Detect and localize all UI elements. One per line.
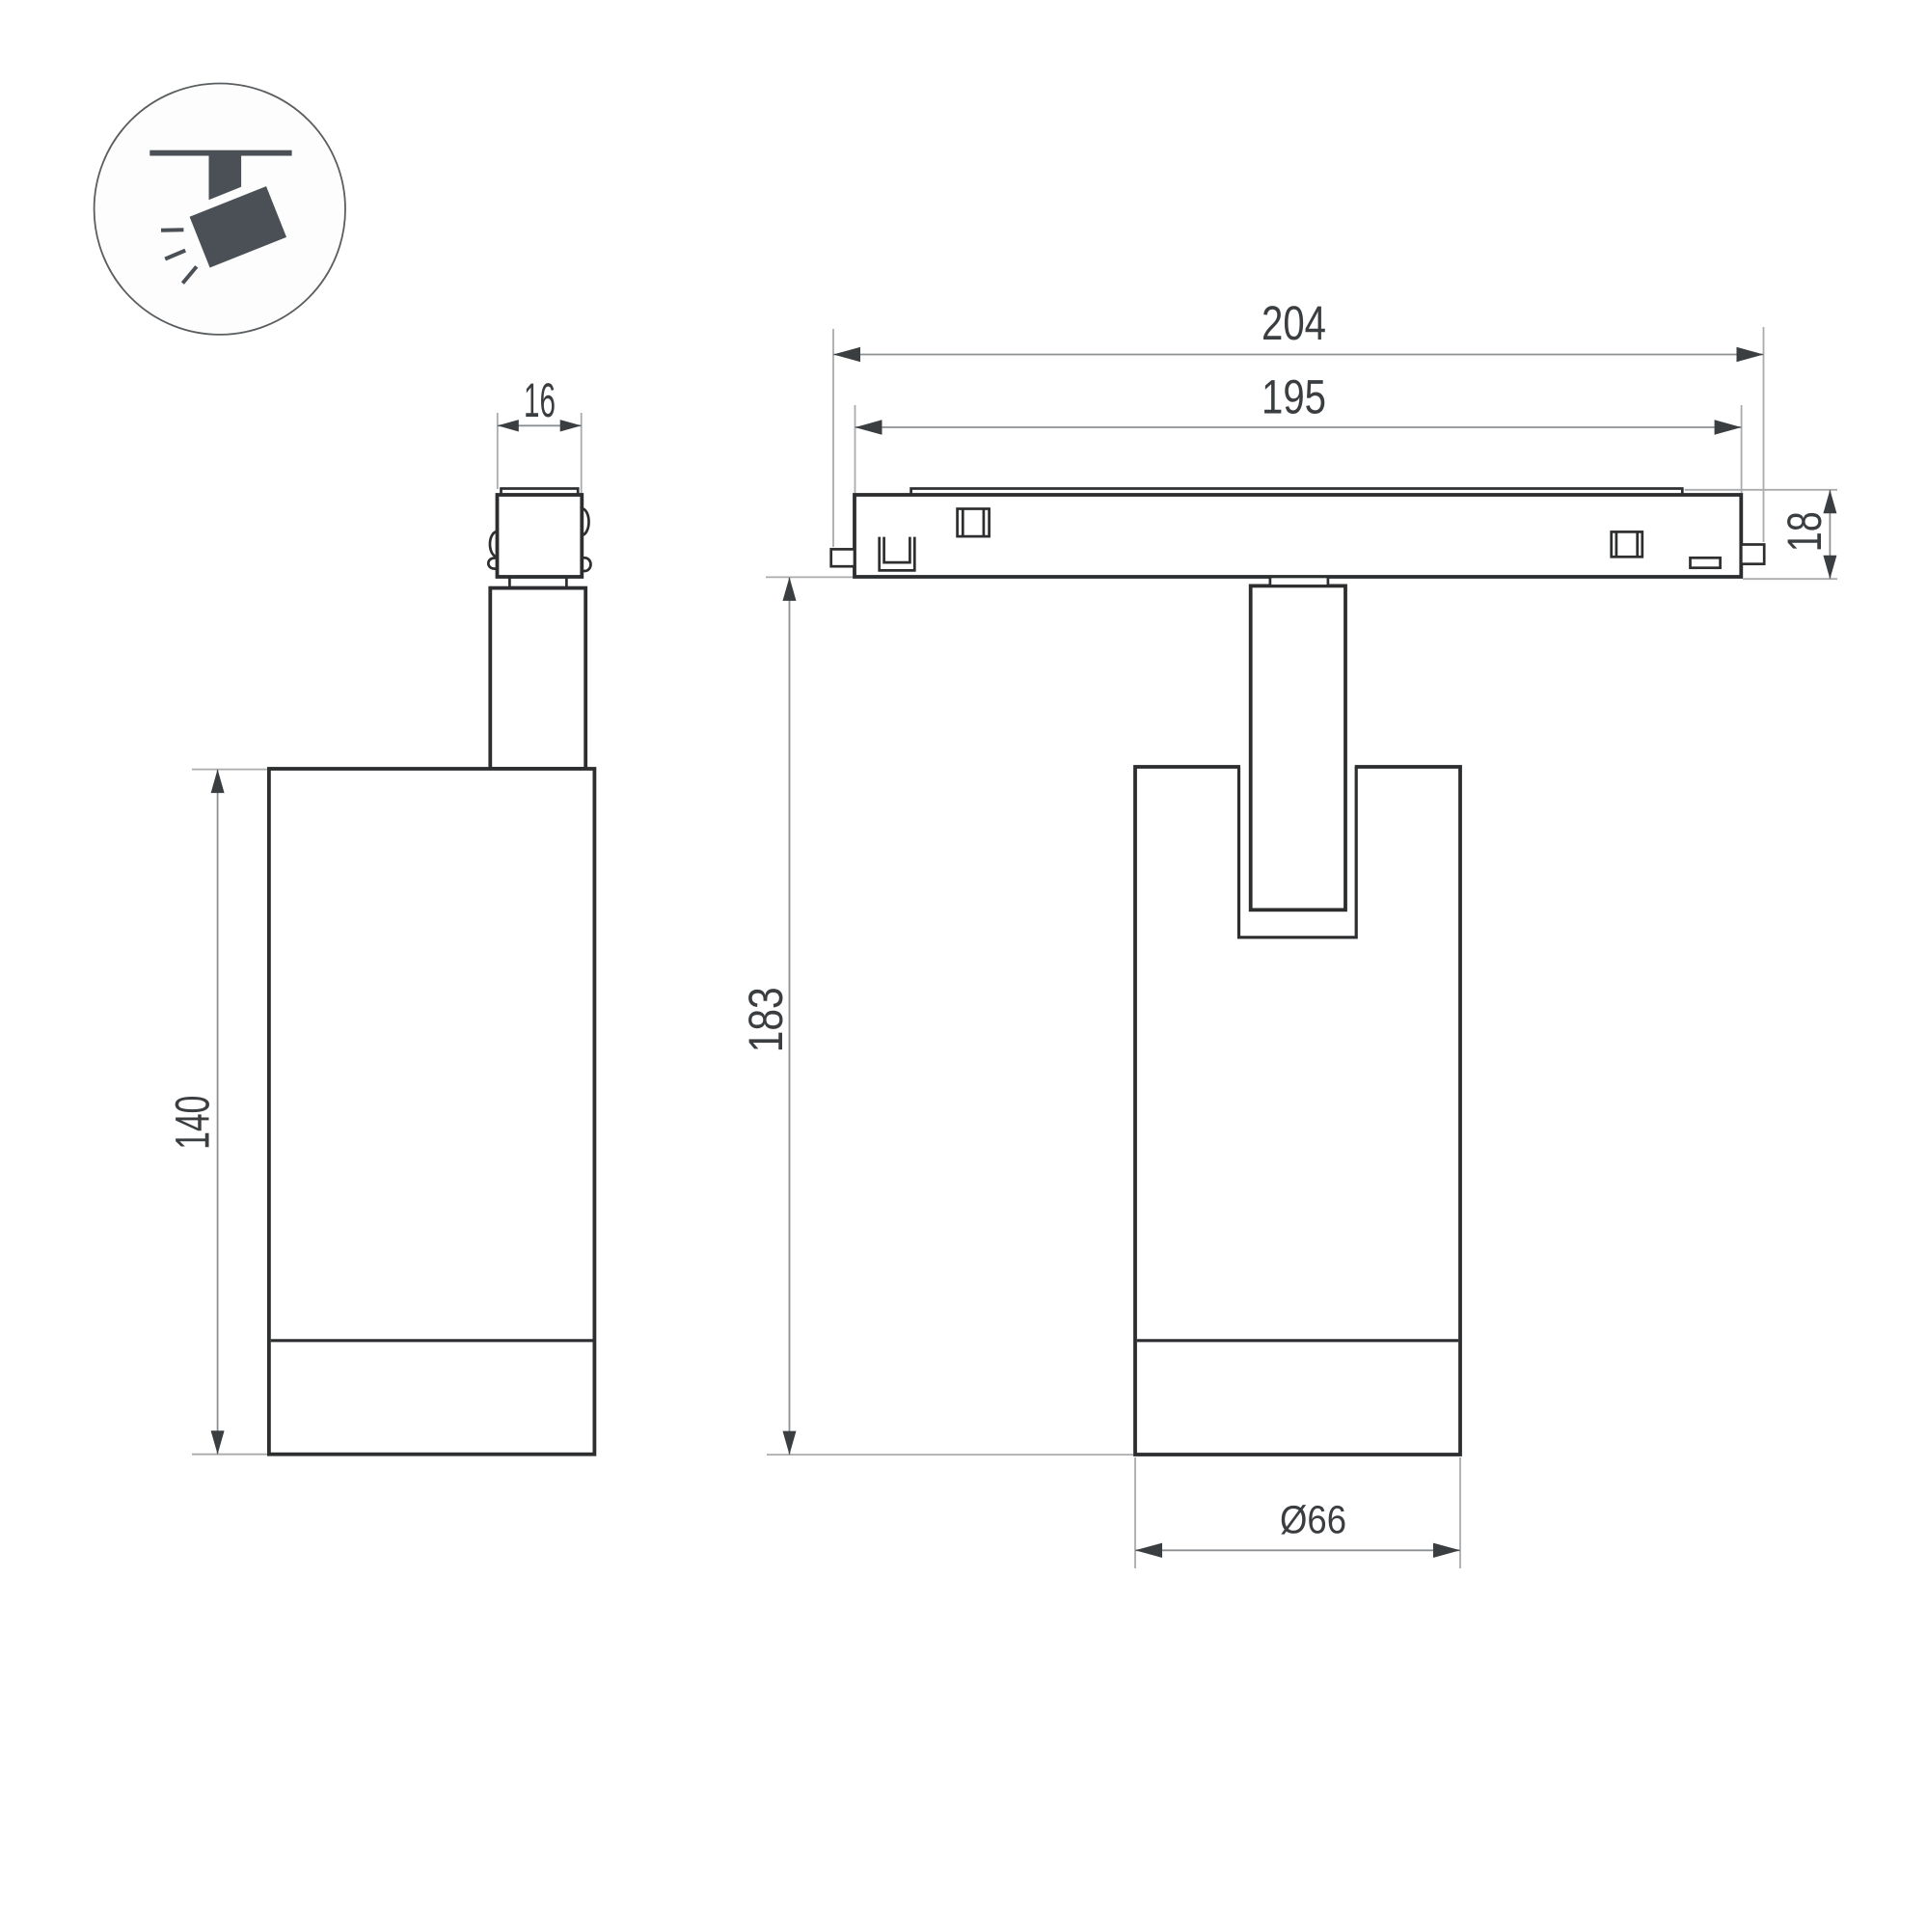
svg-text:16: 16 [524, 373, 556, 427]
svg-text:Ø66: Ø66 [1280, 1498, 1346, 1542]
svg-text:195: 195 [1262, 370, 1326, 424]
svg-text:18: 18 [1778, 511, 1832, 552]
svg-text:183: 183 [739, 987, 793, 1052]
svg-text:140: 140 [165, 1096, 219, 1150]
svg-text:204: 204 [1262, 296, 1326, 350]
